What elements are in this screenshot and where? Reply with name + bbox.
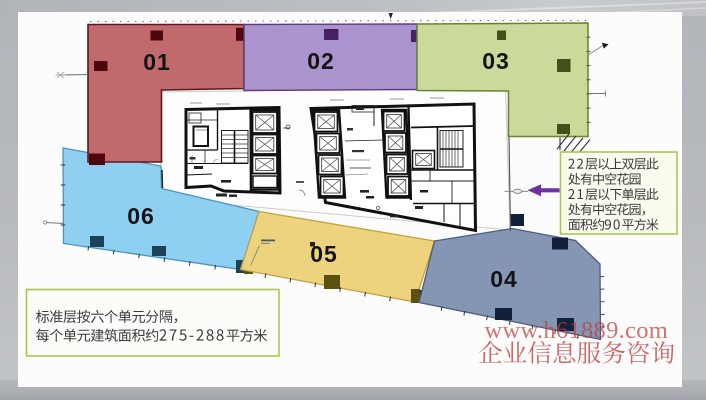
svg-text:06: 06 — [127, 203, 155, 229]
svg-text:04: 04 — [490, 266, 518, 292]
svg-text:01: 01 — [143, 49, 171, 75]
svg-text:www.h61889.com: www.h61889.com — [485, 317, 669, 344]
svg-text:03: 03 — [482, 48, 510, 74]
svg-text:02: 02 — [307, 48, 335, 74]
